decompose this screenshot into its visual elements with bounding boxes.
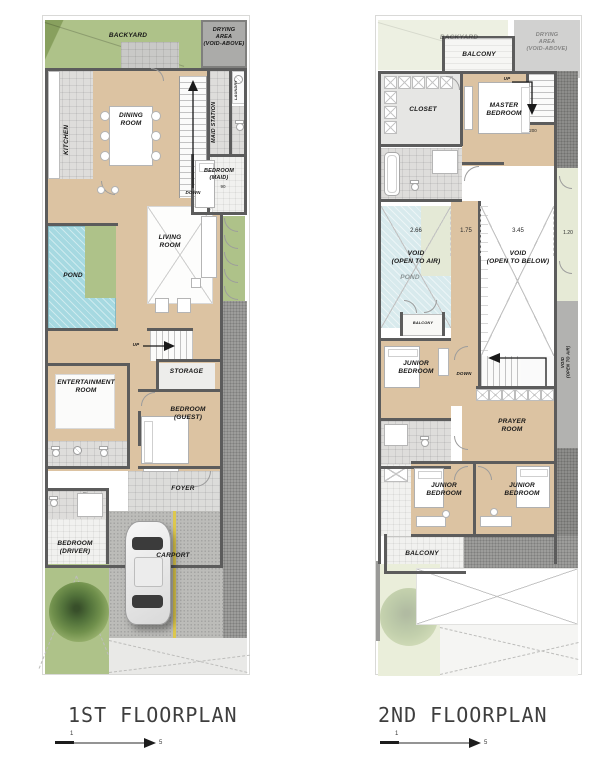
toilet-icon <box>49 496 57 506</box>
wall <box>378 71 557 74</box>
scale-arrow-icon <box>398 737 482 749</box>
second-floorplan: BACKYARD BALCONY DRYING AREA (VOID-ABOVE… <box>375 15 582 675</box>
second-scalebar: 1 5 <box>380 731 500 755</box>
desk-chair <box>490 508 498 516</box>
kitchen-counter <box>48 71 60 179</box>
wardrobe <box>384 76 397 89</box>
backyard-label: BACKYARD <box>83 32 173 40</box>
wall <box>378 418 451 421</box>
wardrobe <box>384 121 397 134</box>
wall <box>554 71 557 564</box>
first-floorplan: BACKYARD DRYING AREA (VOID-ABOVE) KITCHE… <box>42 15 250 675</box>
door-arc <box>464 166 479 181</box>
tree <box>49 582 109 642</box>
armchair <box>177 298 191 313</box>
shower <box>432 150 458 174</box>
wall <box>411 534 557 537</box>
desk <box>480 516 512 527</box>
dining-room-label: DINING ROOM <box>109 112 153 128</box>
guest-bed <box>141 416 189 464</box>
scale-end-value: 5 <box>159 740 162 746</box>
wall <box>45 68 247 71</box>
wall <box>526 122 556 125</box>
wall <box>156 359 220 362</box>
balcony-mid-label: BALCONY <box>404 321 442 326</box>
car-roof <box>134 557 163 587</box>
wall <box>45 466 130 469</box>
desk <box>416 516 446 527</box>
wall <box>45 68 48 568</box>
toilet-icon <box>235 120 243 130</box>
wall <box>45 488 109 491</box>
side-table <box>191 278 201 288</box>
junior-bedroom-br-label: JUNIOR BEDROOM <box>494 482 550 498</box>
pond-faded-label: POND <box>390 274 430 282</box>
toilet-icon <box>420 436 428 446</box>
second-floorplan-title: 2ND FLOORPLAN <box>378 703 548 727</box>
dim-3-45: 3.45 <box>500 228 536 236</box>
drying-faded-label: DRYING AREA (VOID-ABOVE) <box>516 32 578 53</box>
wall <box>45 363 130 366</box>
shower <box>77 493 103 517</box>
wardrobe <box>426 76 439 89</box>
bed-dim-label: 200 <box>524 128 542 134</box>
backyard-pad <box>121 42 179 68</box>
dining-chair <box>100 131 110 141</box>
wardrobe <box>384 91 397 104</box>
pillow <box>388 349 418 357</box>
wall <box>462 162 504 165</box>
maid-bedroom-dim: 90 <box>213 184 233 190</box>
carport-marking <box>173 511 176 638</box>
wardrobe <box>398 76 411 89</box>
balcony-bottom-label: BALCONY <box>394 550 450 558</box>
dining-chair <box>100 151 110 161</box>
toilet-icon <box>51 446 59 456</box>
first-scalebar: 1 5 <box>55 731 175 755</box>
wall <box>411 461 557 464</box>
junior-bedroom-left-label: JUNIOR BEDROOM <box>388 360 444 376</box>
wall <box>106 488 109 564</box>
wall <box>138 466 223 469</box>
master-bedroom-label: MASTER BEDROOM <box>476 102 532 118</box>
wall <box>191 212 247 215</box>
foyer-label: FOYER <box>163 485 203 493</box>
cabinet <box>476 389 489 401</box>
backyard-faded-label: BACKYARD <box>424 34 494 42</box>
dining-chair <box>151 131 161 141</box>
toilet-icon <box>410 180 418 190</box>
wall <box>127 363 130 468</box>
balcony-top-label: BALCONY <box>450 51 508 59</box>
toilet-icon <box>99 446 107 456</box>
car <box>125 521 171 625</box>
wall <box>147 328 193 331</box>
roof-below <box>416 568 578 625</box>
nook-chair <box>111 186 119 194</box>
closet-label: CLOSET <box>398 106 448 114</box>
kitchen-label: KITCHEN <box>63 108 71 172</box>
dim-1-20: 1.20 <box>558 230 578 236</box>
wardrobe <box>412 76 425 89</box>
void-open-air-label: VOID (OPEN TO AIR) <box>384 250 448 266</box>
entertainment-label: ENTERTAINMENT ROOM <box>47 379 125 395</box>
junior-bedroom-bl-label: JUNIOR BEDROOM <box>416 482 472 498</box>
scale-end-value: 5 <box>484 740 487 746</box>
maid-station-label: MAID STATION <box>211 88 218 156</box>
wall <box>460 74 463 146</box>
pond-planter <box>85 226 116 298</box>
pillow <box>144 421 153 463</box>
dining-chair <box>151 151 161 161</box>
sink-icon <box>73 446 82 455</box>
side-path <box>223 301 247 638</box>
cabinet <box>515 389 528 401</box>
wardrobe <box>384 106 397 119</box>
driver-bedroom-label: BEDROOM (DRIVER) <box>47 540 103 556</box>
down-label: DOWN <box>450 371 478 377</box>
dresser <box>464 86 473 130</box>
carport-label: CARPORT <box>145 552 201 560</box>
void-open-below-label: VOID (OPEN TO BELOW) <box>484 250 552 266</box>
drying-area-label: DRYING AREA (VOID-ABOVE) <box>201 27 247 48</box>
car-rear-window <box>132 595 163 608</box>
wall <box>400 312 403 336</box>
first-floorplan-title: 1ST FLOORPLAN <box>68 703 238 727</box>
scale-segment <box>55 741 74 744</box>
scale-arrow-icon <box>73 737 157 749</box>
door-arc <box>454 436 468 450</box>
wall <box>378 144 462 147</box>
up-label: UP <box>129 342 143 348</box>
bathtub <box>384 152 400 196</box>
car-windshield <box>132 537 163 550</box>
wall <box>229 68 232 156</box>
storage-label: STORAGE <box>158 368 215 376</box>
prayer-room-label: PRAYER ROOM <box>484 418 540 434</box>
cabinet <box>541 389 554 401</box>
wall <box>378 199 462 202</box>
void-open-air-side-label: VOID (OPEN TO AIR) <box>560 334 571 390</box>
wall <box>384 534 387 574</box>
pond-label: POND <box>53 272 93 280</box>
gravel-strip-right-lower <box>557 448 578 536</box>
wall <box>220 214 223 568</box>
maid-bedroom-label: BEDROOM (MAID) <box>193 168 245 182</box>
dim-line <box>553 206 554 256</box>
wall <box>45 223 118 226</box>
wall <box>442 312 445 336</box>
cabinet <box>489 389 502 401</box>
wall <box>244 68 247 214</box>
pillow <box>418 471 442 479</box>
wall <box>512 36 515 74</box>
wall-stub <box>376 561 380 641</box>
living-room-label: LIVING ROOM <box>149 234 191 250</box>
dim-1-75: 1.75 <box>448 228 484 236</box>
wall <box>384 571 466 574</box>
nook-chair <box>97 186 105 194</box>
down-label: DOWN <box>179 190 207 196</box>
laundry-label: LAUNDRY <box>234 78 239 102</box>
shower <box>384 424 408 446</box>
cabinet <box>528 389 541 401</box>
pillow <box>520 469 548 477</box>
up-label: UP <box>500 76 514 82</box>
cabinet <box>502 389 515 401</box>
armchair <box>155 298 169 313</box>
wall <box>378 338 451 341</box>
dim-2-66: 2.66 <box>398 228 434 236</box>
wall <box>45 328 118 331</box>
guest-bedroom-label: BEDROOM (GUEST) <box>163 406 213 422</box>
elbow-left-arrow-icon <box>486 346 552 388</box>
scale-segment <box>380 741 399 744</box>
gravel-strip-right <box>557 71 578 168</box>
sofa <box>201 216 217 278</box>
desk-chair <box>442 510 450 518</box>
floorplan-sheet: BACKYARD DRYING AREA (VOID-ABOVE) KITCHE… <box>0 0 616 778</box>
right-arrow-icon <box>143 341 175 351</box>
wall <box>473 464 476 536</box>
